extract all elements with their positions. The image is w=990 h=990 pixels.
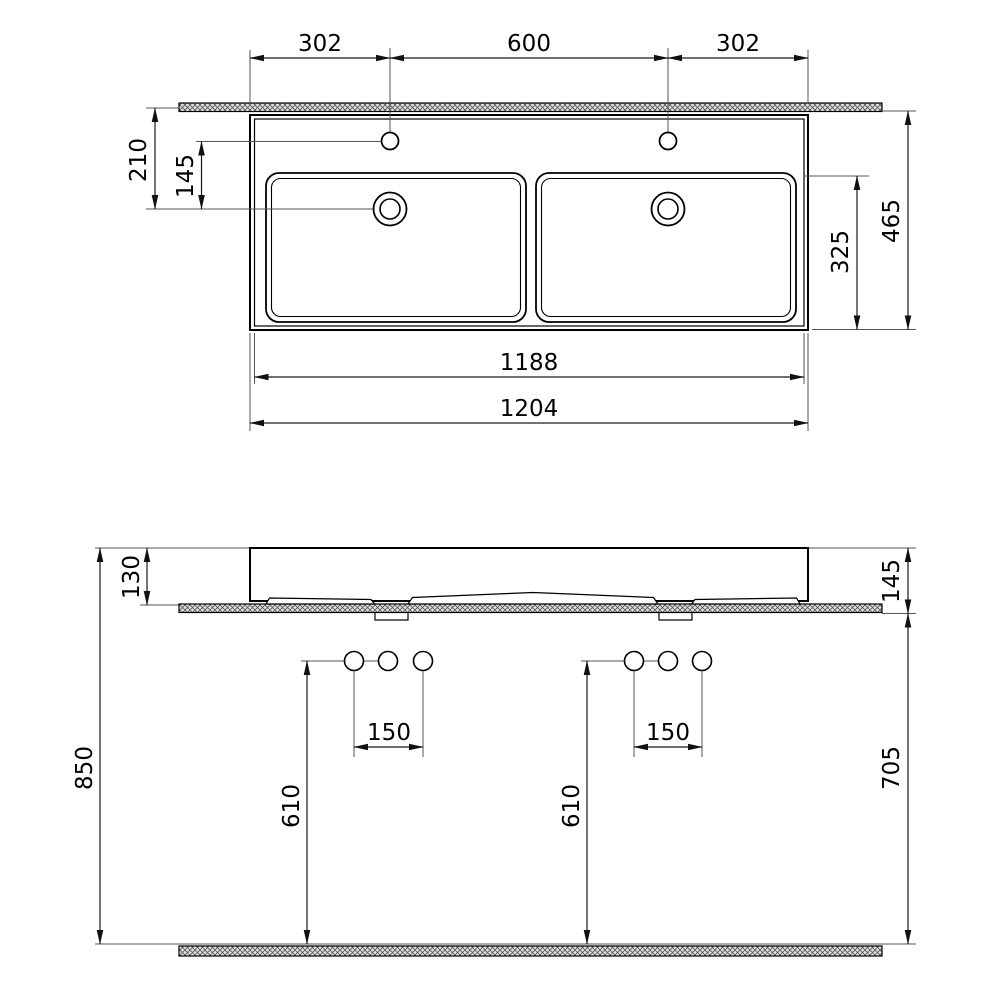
basin-foot-left — [266, 598, 375, 604]
dim-label-130: 130 — [119, 555, 145, 599]
technical-drawing-page: 302 600 302 210 145 325 465 1188 1204 — [0, 0, 990, 990]
dim-label-325: 325 — [828, 230, 854, 274]
supply-hole-right-2 — [659, 652, 678, 671]
supply-hole-left-1 — [345, 652, 364, 671]
floor-strip — [179, 946, 882, 956]
dim-label-302-left: 302 — [298, 31, 342, 57]
faucet-hole-left — [382, 133, 399, 150]
dim-label-150-left: 150 — [367, 720, 411, 746]
dim-label-145-plan: 145 — [173, 154, 199, 198]
counter-strip-plan — [179, 103, 882, 112]
dim-label-610-left: 610 — [279, 784, 305, 828]
dim-label-600: 600 — [507, 31, 551, 57]
faucet-hole-right — [660, 133, 677, 150]
dim-label-850: 850 — [72, 746, 98, 790]
dim-label-1188: 1188 — [500, 350, 559, 376]
basin-foot-right — [692, 598, 801, 604]
supply-hole-left-3 — [414, 652, 433, 671]
top-view: 302 600 302 210 145 325 465 1188 1204 — [126, 31, 916, 431]
dim-label-150-right: 150 — [646, 720, 690, 746]
counter-strip-front — [179, 604, 882, 613]
dim-label-465: 465 — [879, 199, 905, 243]
supply-hole-left-2 — [379, 652, 398, 671]
dim-label-145-front: 145 — [879, 559, 905, 603]
supply-hole-right-1 — [625, 652, 644, 671]
supply-hole-right-3 — [693, 652, 712, 671]
dim-label-302-right: 302 — [716, 31, 760, 57]
basin-dimension-drawing: 302 600 302 210 145 325 465 1188 1204 — [0, 0, 990, 990]
dim-label-705: 705 — [879, 746, 905, 790]
dim-label-210: 210 — [126, 138, 152, 182]
dim-label-610-right: 610 — [559, 784, 585, 828]
dim-label-1204: 1204 — [500, 396, 559, 422]
front-view: 850 130 145 705 610 610 150 150 — [72, 548, 916, 956]
drain-left-inner — [380, 199, 400, 219]
drain-right-inner — [658, 199, 678, 219]
